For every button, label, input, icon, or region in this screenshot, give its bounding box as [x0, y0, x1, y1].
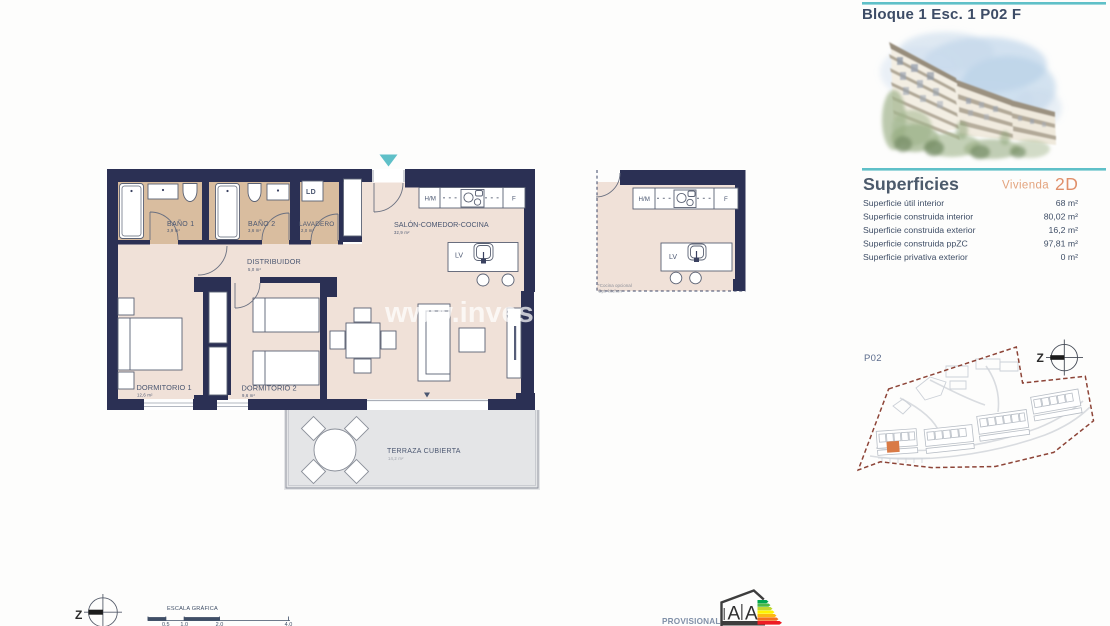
- svg-text:LV: LV: [455, 253, 463, 260]
- svg-text:14,2 m²: 14,2 m²: [388, 456, 404, 461]
- svg-text:DORMITORIO 1: DORMITORIO 1: [137, 383, 192, 392]
- svg-text:Superficie útil interior: Superficie útil interior: [863, 198, 944, 208]
- svg-text:Z: Z: [1037, 351, 1044, 365]
- svg-text:A: A: [728, 604, 741, 625]
- svg-text:Superficie construida ppZC: Superficie construida ppZC: [863, 239, 968, 249]
- svg-text:LD: LD: [306, 189, 316, 196]
- svg-text:LV: LV: [669, 254, 677, 261]
- svg-text:2D: 2D: [1055, 174, 1078, 194]
- svg-text:Superficies: Superficies: [863, 174, 959, 194]
- svg-text:H/M: H/M: [639, 196, 650, 203]
- svg-text:16,2 m²: 16,2 m²: [1049, 225, 1079, 235]
- svg-text:DISTRIBUIDOR: DISTRIBUIDOR: [247, 257, 301, 266]
- svg-text:Z: Z: [75, 608, 82, 622]
- svg-text:BAÑO 2: BAÑO 2: [248, 219, 275, 228]
- svg-text:80,02 m²: 80,02 m²: [1044, 212, 1078, 222]
- svg-text:F: F: [724, 196, 728, 203]
- svg-text:P02: P02: [864, 353, 882, 364]
- svg-text:Opt. kitchen: Opt. kitchen: [598, 289, 623, 294]
- svg-text:PROVISIONAL: PROVISIONAL: [662, 617, 721, 626]
- svg-text:Superficie construida interior: Superficie construida interior: [863, 212, 973, 222]
- svg-text:5,0 m²: 5,0 m²: [248, 267, 261, 272]
- svg-text:Vivienda: Vivienda: [1002, 180, 1049, 192]
- svg-text:12,6 m²: 12,6 m²: [137, 393, 153, 398]
- svg-text:ESCALA GRÁFICA: ESCALA GRÁFICA: [167, 605, 218, 612]
- svg-text:9,6 m²: 9,6 m²: [242, 393, 255, 398]
- svg-text:H/M: H/M: [425, 196, 436, 203]
- svg-text:3,9 m²: 3,9 m²: [167, 228, 180, 233]
- svg-text:1,0: 1,0: [180, 622, 188, 626]
- svg-text:BAÑO 1: BAÑO 1: [167, 219, 194, 228]
- svg-text:A: A: [745, 604, 758, 625]
- svg-text:2,0: 2,0: [216, 622, 224, 626]
- svg-text:4,0: 4,0: [285, 622, 293, 626]
- svg-text:0,5: 0,5: [162, 622, 170, 626]
- svg-text:TERRAZA CUBIERTA: TERRAZA CUBIERTA: [387, 448, 461, 455]
- svg-text:Superficie privativa exterior: Superficie privativa exterior: [863, 252, 968, 262]
- svg-text:F: F: [512, 196, 516, 203]
- svg-text:0 m²: 0 m²: [1061, 252, 1078, 262]
- svg-text:DORMITORIO 2: DORMITORIO 2: [242, 384, 297, 393]
- svg-text:97,81 m²: 97,81 m²: [1044, 239, 1078, 249]
- svg-text:68 m²: 68 m²: [1056, 198, 1078, 208]
- svg-text:3,6 m²: 3,6 m²: [248, 228, 261, 233]
- svg-text:Bloque 1 Esc. 1 P02 F: Bloque 1 Esc. 1 P02 F: [862, 6, 1021, 23]
- svg-text:2,0 m²: 2,0 m²: [301, 228, 314, 233]
- svg-text:www.inves: www.inves: [384, 297, 534, 329]
- svg-text:Superficie construida exterior: Superficie construida exterior: [863, 225, 976, 235]
- svg-text:*Cocina opcional: *Cocina opcional: [598, 283, 632, 288]
- svg-text:SALÓN-COMEDOR-COCINA: SALÓN-COMEDOR-COCINA: [394, 220, 489, 229]
- svg-text:LAVADERO: LAVADERO: [299, 221, 334, 228]
- svg-text:32,9 m²: 32,9 m²: [394, 230, 410, 235]
